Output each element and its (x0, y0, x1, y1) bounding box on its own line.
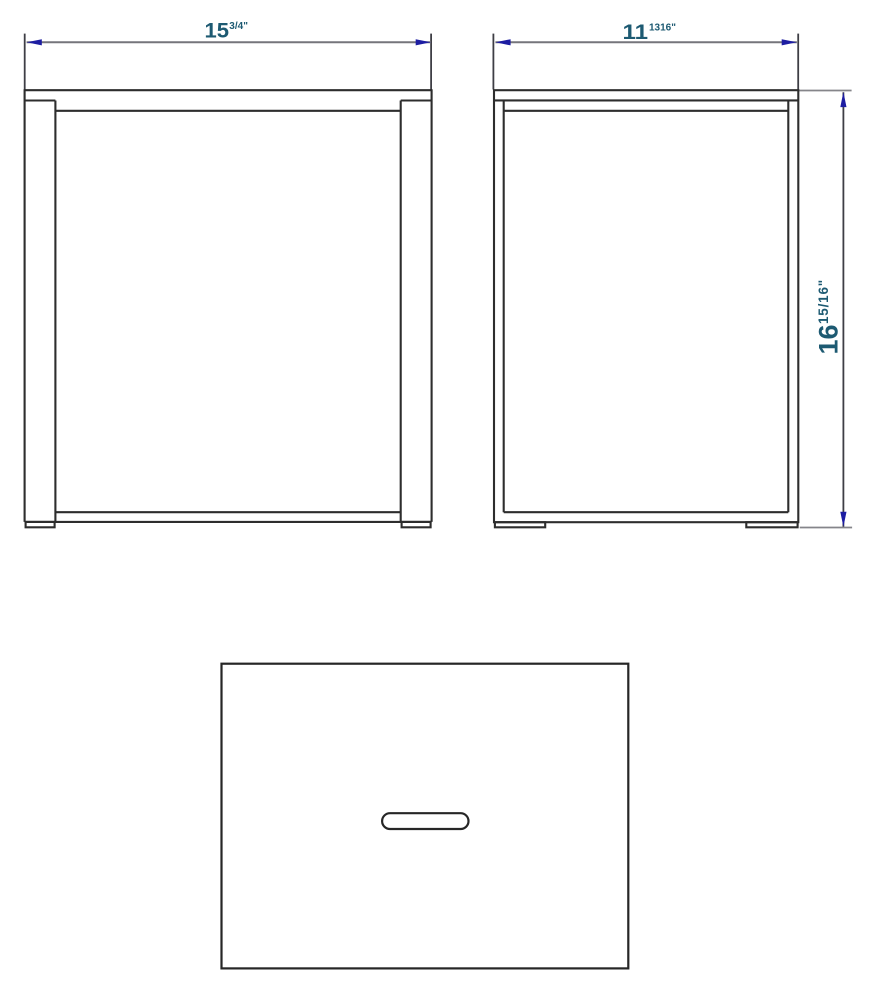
svg-text:11: 11 (623, 21, 649, 44)
svg-text:15: 15 (205, 20, 230, 43)
svg-text:16: 16 (814, 325, 844, 355)
svg-text:3/4": 3/4" (229, 21, 248, 32)
svg-text:1316": 1316" (649, 23, 676, 34)
svg-text:15/16": 15/16" (816, 279, 831, 324)
